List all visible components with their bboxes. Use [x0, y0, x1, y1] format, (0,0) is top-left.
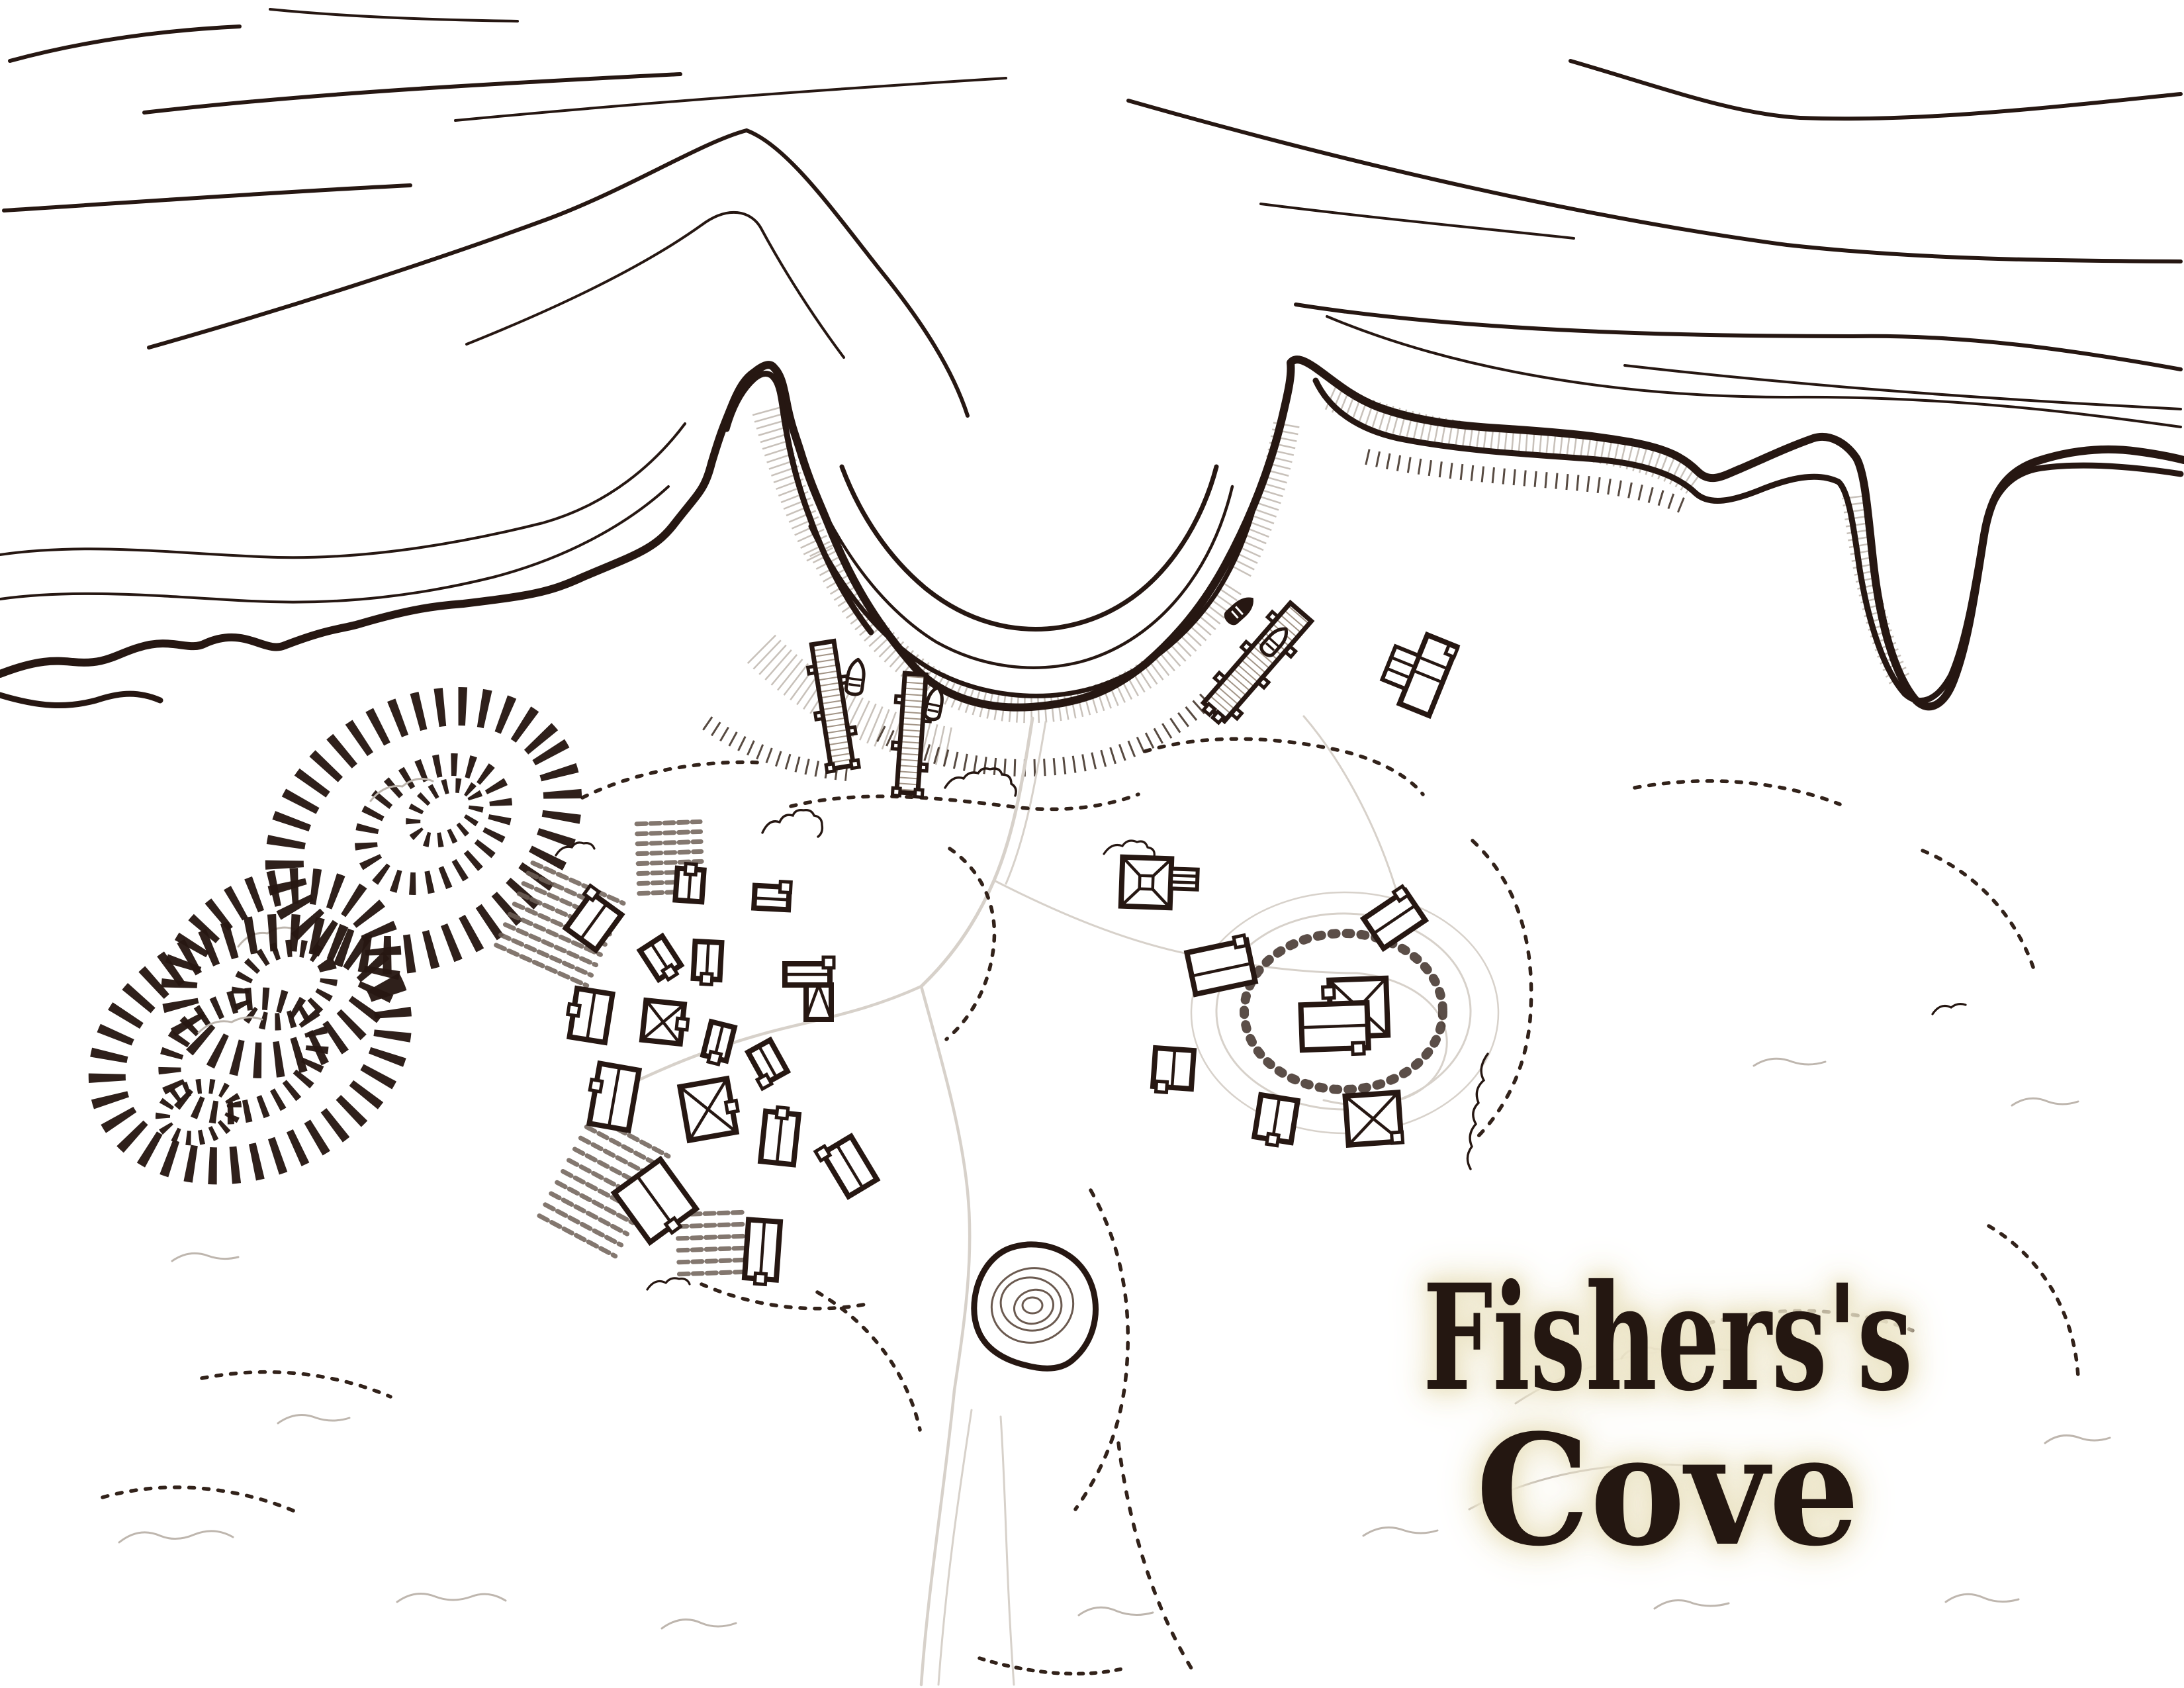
map-canvas: Fishers's Cove: [0, 0, 2184, 1688]
building-24-dockhouse: [1377, 626, 1459, 716]
pond: [974, 1244, 1096, 1368]
building-2: [754, 880, 791, 910]
map-stage: Fishers's Cove: [0, 0, 2184, 1688]
field-plot-south: [677, 1212, 748, 1274]
roads: [597, 716, 1498, 1685]
hill-south: [69, 889, 430, 1210]
building-13: [760, 1106, 799, 1165]
building-17-hip-roof: [1121, 857, 1199, 909]
map-title: Fishers's Cove: [1423, 1252, 1913, 1580]
sea-waves: [4, 9, 2181, 409]
building-12: [680, 1078, 741, 1141]
waterline: [842, 467, 1216, 630]
beach-ridge: [811, 493, 1257, 696]
building-6: [565, 988, 613, 1043]
building-18: [1186, 935, 1255, 994]
building-5: [693, 941, 721, 985]
building-19: [1361, 886, 1426, 949]
building-1: [675, 863, 704, 902]
building-7: [642, 1000, 690, 1045]
rowboat-1: [845, 659, 866, 696]
building-4: [640, 936, 684, 984]
building-9: [785, 957, 834, 1019]
building-21: [1152, 1048, 1193, 1094]
rowboat-3: [1223, 594, 1257, 626]
building-14: [815, 1132, 877, 1199]
pier-west: [804, 640, 861, 773]
building-16: [744, 1219, 780, 1285]
map-title-line-2: Cove: [1476, 1401, 1860, 1580]
building-8: [702, 1021, 734, 1066]
hill-north: [150, 655, 610, 1093]
beach-edge-left: [0, 694, 160, 705]
coastline: [0, 359, 2184, 707]
inlet-arch-contours: [149, 130, 968, 416]
building-11: [584, 1062, 639, 1130]
village-buildings: [561, 626, 1458, 1286]
building-22: [1253, 1095, 1298, 1148]
building-10: [743, 1040, 789, 1089]
map-title-line-1: Fishers's: [1423, 1252, 1913, 1423]
building-20-manor: [1300, 978, 1388, 1056]
building-23: [1345, 1092, 1403, 1147]
